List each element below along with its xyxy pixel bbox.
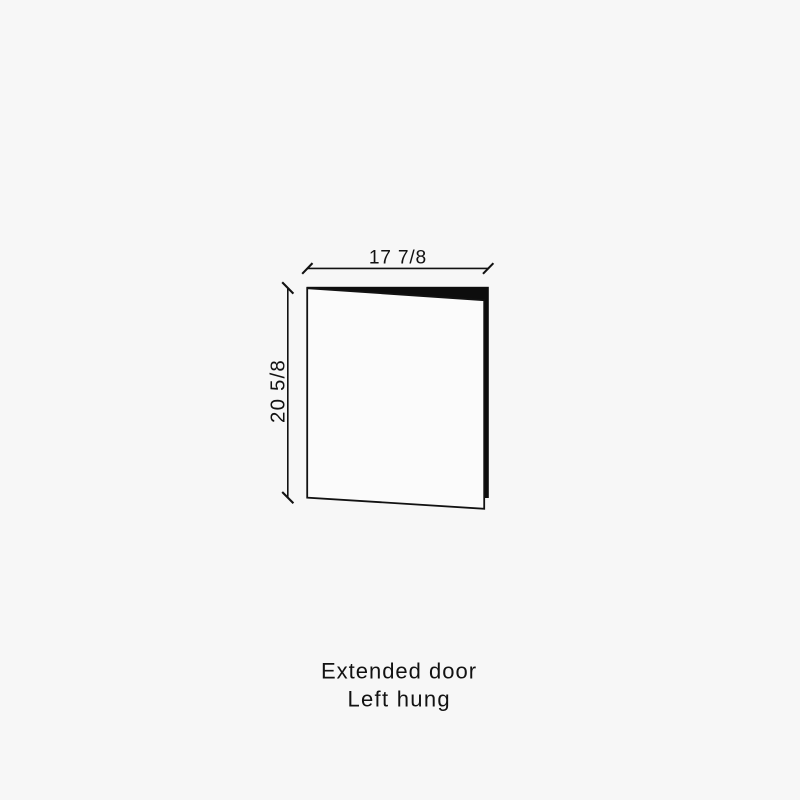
svg-text:17 7/8: 17 7/8 [369,248,427,269]
svg-text:20 5/8: 20 5/8 [267,359,290,423]
svg-text:Left hung: Left hung [347,686,450,711]
svg-text:Extended door: Extended door [321,659,477,684]
